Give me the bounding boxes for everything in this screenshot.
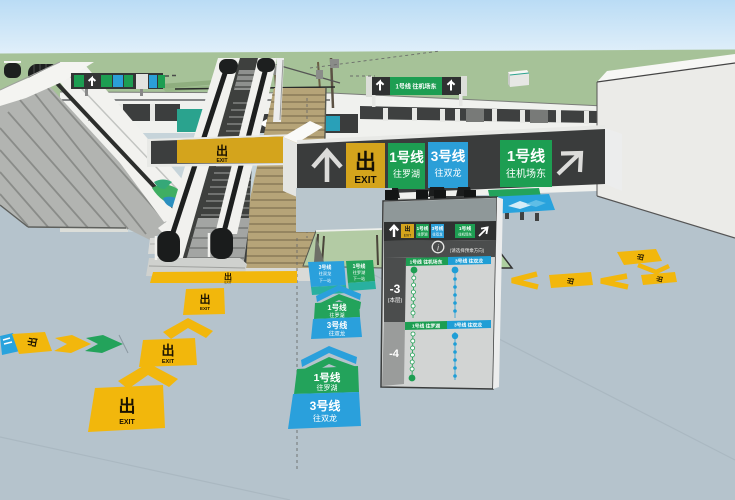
svg-text:EXIT: EXIT	[216, 158, 227, 164]
svg-text:3号线: 3号线	[431, 148, 466, 164]
svg-text:往双龙: 往双龙	[434, 167, 461, 178]
svg-text:1号线 往机场东: 1号线 往机场东	[410, 259, 443, 266]
svg-text:往双龙: 往双龙	[432, 232, 443, 237]
svg-text:EXIT: EXIT	[404, 234, 412, 238]
svg-text:往罗湖: 往罗湖	[417, 232, 428, 237]
svg-text:出: 出	[119, 396, 136, 416]
svg-text:-4: -4	[389, 348, 400, 360]
svg-text:1号线 往机场东: 1号线 往机场东	[395, 83, 436, 91]
svg-text:1号线: 1号线	[389, 149, 424, 165]
svg-text:往机场东: 往机场东	[458, 232, 472, 237]
svg-text:1号线: 1号线	[353, 263, 366, 270]
svg-text:往双龙: 往双龙	[329, 330, 346, 338]
svg-text:1号线: 1号线	[417, 225, 429, 232]
svg-text:3号线: 3号线	[432, 225, 444, 232]
svg-text:出: 出	[404, 225, 410, 233]
svg-text:3号线: 3号线	[319, 264, 332, 271]
svg-text:下一站: 下一站	[319, 277, 331, 283]
svg-text:3号线 往双龙: 3号线 往双龙	[454, 322, 482, 329]
svg-text:1号线 往罗湖: 1号线 往罗湖	[412, 323, 440, 330]
svg-text:1号线: 1号线	[327, 302, 347, 312]
svg-text:往罗湖: 往罗湖	[393, 168, 420, 179]
svg-text:1号线: 1号线	[507, 147, 545, 165]
svg-text:出: 出	[355, 151, 376, 174]
svg-text:往双龙: 往双龙	[319, 270, 332, 277]
svg-text:3号线 往双龙: 3号线 往双龙	[455, 258, 483, 265]
svg-text:1号线: 1号线	[459, 225, 471, 232]
svg-text:往罗湖: 往罗湖	[317, 383, 338, 392]
svg-text:(请选择预乘方向): (请选择预乘方向)	[450, 247, 485, 254]
svg-text:出: 出	[216, 143, 228, 158]
svg-text:下一站: 下一站	[353, 275, 365, 281]
svg-text:往机场东: 往机场东	[506, 167, 546, 180]
svg-text:EXIT: EXIT	[119, 419, 135, 426]
svg-text:-3: -3	[390, 282, 401, 296]
svg-text:EXIT: EXIT	[224, 281, 231, 285]
svg-text:出: 出	[161, 343, 174, 358]
svg-text:1号线: 1号线	[314, 371, 341, 384]
svg-text:3号线: 3号线	[310, 398, 341, 413]
svg-text:3号线: 3号线	[327, 320, 347, 330]
svg-text:i: i	[437, 244, 439, 253]
svg-text:EXIT: EXIT	[162, 359, 175, 365]
svg-text:出: 出	[200, 292, 211, 306]
svg-text:往双龙: 往双龙	[313, 413, 337, 423]
svg-text:EXIT: EXIT	[200, 306, 210, 311]
svg-text:(本层): (本层)	[388, 296, 403, 304]
svg-text:EXIT: EXIT	[354, 175, 376, 186]
svg-text:往罗湖: 往罗湖	[353, 269, 366, 276]
